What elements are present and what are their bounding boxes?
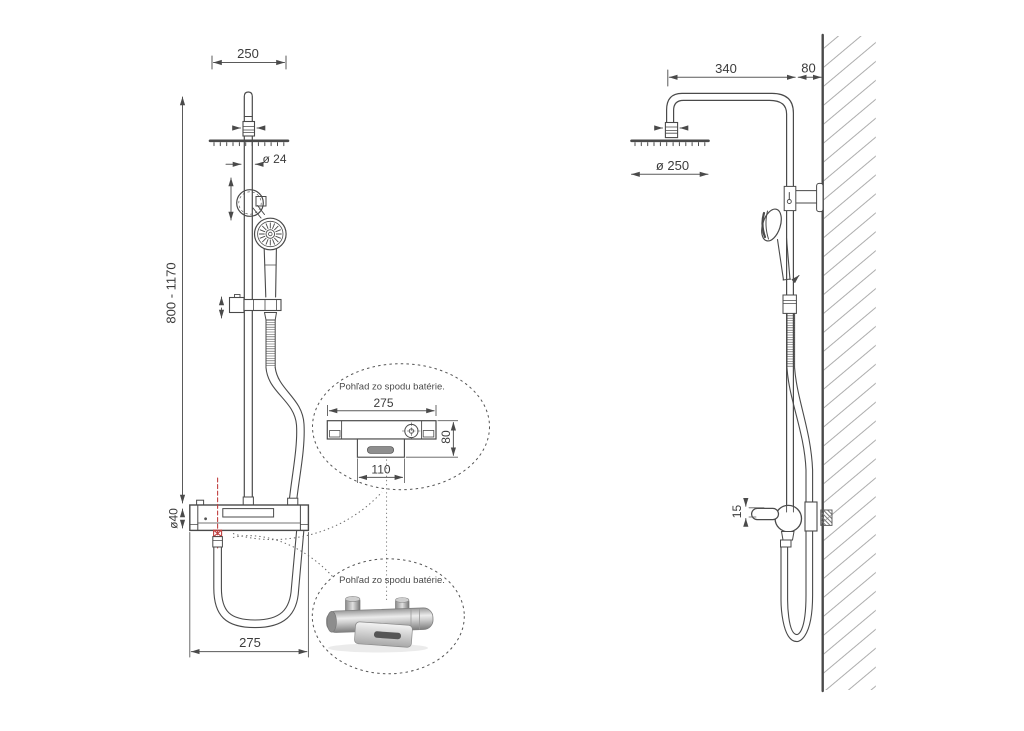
hose-outlet-connector	[213, 537, 223, 547]
wall-hatch	[824, 36, 876, 690]
front-view: 250 800 - 1170 ø40	[164, 46, 309, 657]
dim-spout-offset-label: 15	[730, 505, 744, 519]
dim-pole-diameter-label: ø 24	[263, 152, 287, 166]
dim-wall-offset-label: 80	[801, 61, 815, 76]
diverter-box	[784, 186, 796, 210]
dim-arm-depth: 340	[668, 61, 795, 86]
waterfall-spout-side	[752, 508, 779, 519]
render-left-cap	[327, 611, 336, 632]
dim-mixer-width-label: 275	[239, 635, 261, 650]
wall-link	[805, 502, 817, 531]
gooseneck-arm-and-pipe	[667, 93, 794, 506]
nozzle-ticks-side	[635, 143, 705, 146]
technical-drawing-page: 250 800 - 1170 ø40	[0, 0, 1024, 731]
detail-dim-depth-label: 80	[439, 430, 453, 444]
dim-height-range: 800 - 1170	[164, 97, 183, 503]
hose-nut	[265, 313, 277, 321]
dim-height-range-label: 800 - 1170	[164, 262, 179, 323]
detail-top-caption: Pohľad zo spodu batérie.	[339, 382, 445, 393]
dim-head-diameter-label: ø 250	[656, 158, 689, 173]
wall	[823, 35, 876, 691]
dim-wall-offset: 80	[798, 61, 821, 78]
detail-bubble-top: Pohľad zo spodu batérie. 275 80	[313, 364, 490, 490]
mixer-bottom-view	[327, 421, 436, 458]
ribbed-hose-front	[266, 320, 275, 368]
dim-arm-depth-label: 340	[715, 61, 737, 76]
handle	[264, 249, 276, 297]
overhead-shower-side	[632, 141, 709, 146]
detail-dim-width-label: 275	[373, 396, 393, 410]
detail-bubble-bottom: Pohľad zo spodu batérie.	[312, 559, 464, 674]
head-connector-side	[665, 123, 677, 138]
detail-dim-spout-width: 110	[357, 459, 404, 484]
wall-bracket-side	[784, 183, 823, 211]
wall-fitting-hatched	[821, 510, 832, 525]
dim-mixer-diameter-label: ø40	[167, 508, 181, 529]
mixer-bottom-nut	[782, 532, 795, 541]
dim-head-diameter: ø 250	[632, 158, 709, 174]
slider-bracket	[230, 295, 282, 313]
handshower-lift-arrow	[794, 276, 800, 282]
shower-hose-front	[266, 368, 304, 506]
hose-loop-front	[214, 531, 304, 628]
detail-bottom-caption: Pohľad zo spodu batérie.	[339, 575, 445, 586]
dim-head-width: 250	[212, 46, 286, 69]
mixer-indicator-dot	[204, 517, 207, 520]
dim-mixer-diameter: ø40	[167, 508, 183, 529]
waterfall-slot	[367, 447, 393, 454]
side-view: 340 80 ø 250	[632, 35, 876, 691]
dim-pole-diameter: ø 24	[226, 152, 287, 166]
detail-dim-width: 275	[328, 396, 437, 416]
pole-top-connector	[243, 122, 255, 137]
riser-pole	[244, 92, 252, 505]
thermostatic-mixer-front	[190, 497, 309, 530]
dim-head-width-label: 250	[237, 46, 259, 61]
detail-dim-spout-width-label: 110	[371, 463, 390, 477]
hose-nut-side	[783, 295, 796, 313]
hand-shower-front	[254, 218, 286, 297]
mixer-photo-render	[326, 596, 433, 652]
hand-shower-side	[758, 207, 796, 314]
thermostatic-mixer-side	[752, 502, 832, 547]
shower-system-technical-drawing: 250 800 - 1170 ø40	[0, 0, 1024, 731]
